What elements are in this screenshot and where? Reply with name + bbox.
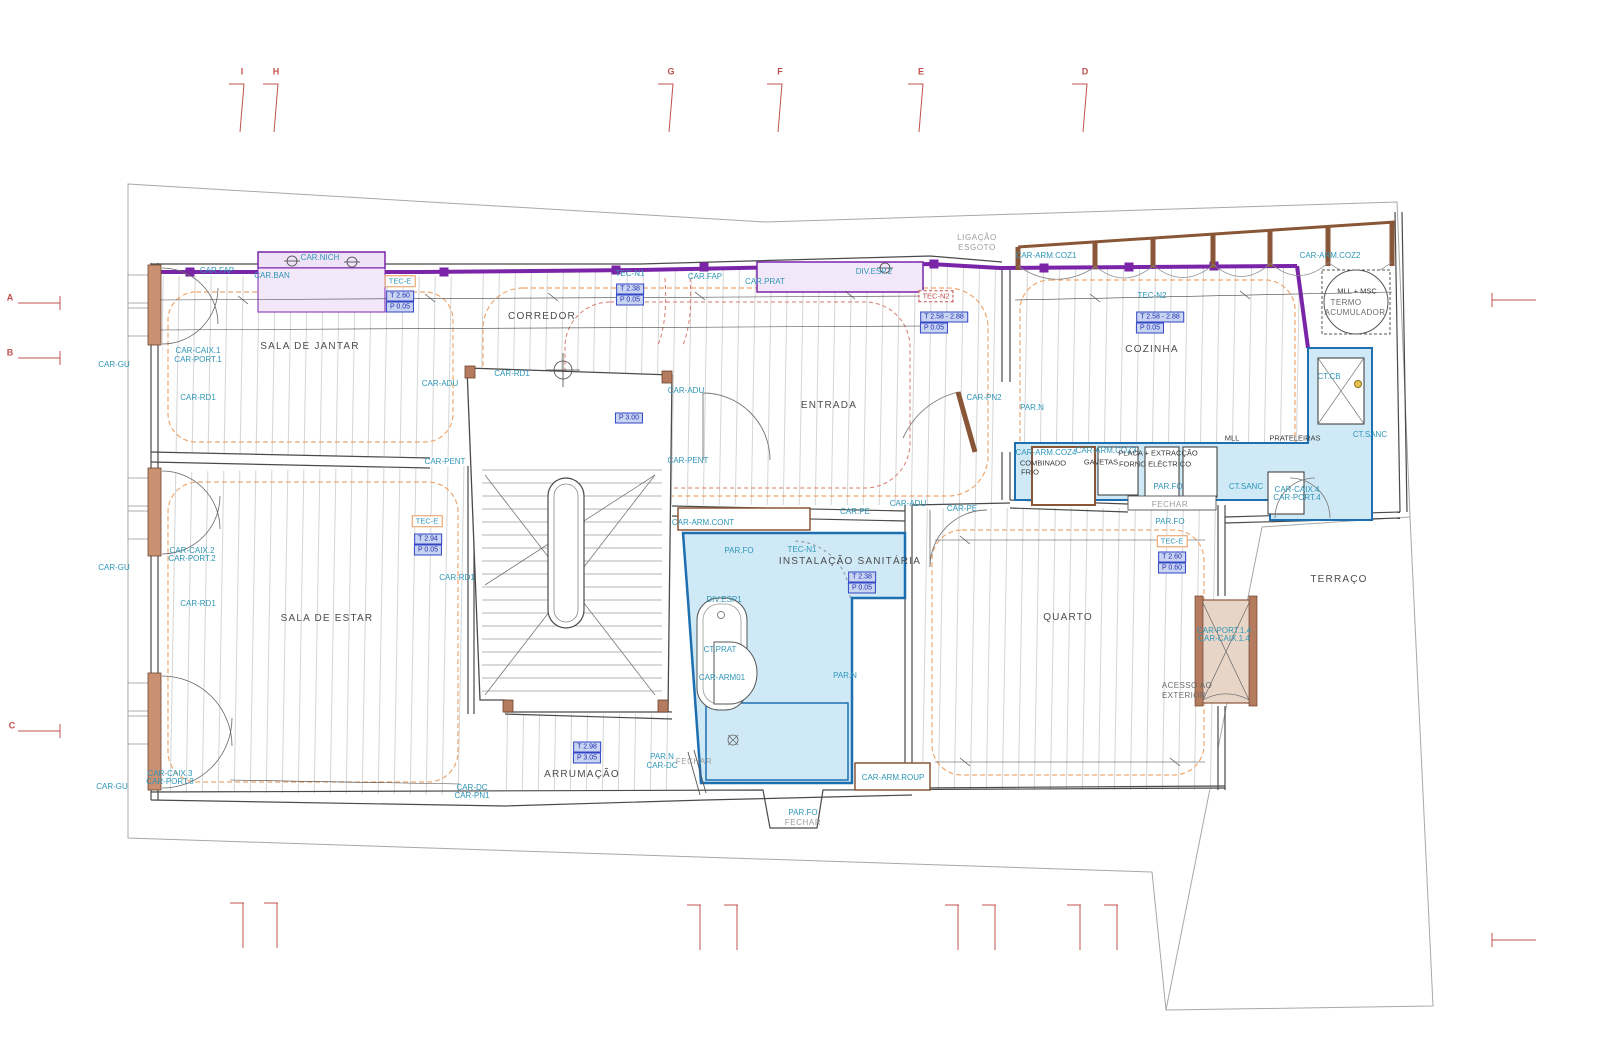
valve-dot (1355, 381, 1362, 388)
car-ban-cabinet (258, 268, 385, 312)
ct-sanc-fixture (1268, 472, 1304, 514)
car-prat-cabinet (757, 262, 923, 292)
forno-unit (1183, 447, 1217, 497)
car-arm-roup-wardrobe (855, 763, 930, 790)
exterior-access-door (1195, 596, 1257, 706)
fridge-combinado (1032, 447, 1095, 505)
placa-unit (1145, 447, 1179, 497)
gavetas-unit (1098, 447, 1138, 495)
fechar-door-panel (1128, 496, 1216, 510)
car-nich-cabinet (258, 252, 385, 268)
floor-plan-canvas: CAR.FAPCAR.BANCAR.NICHTEC-ET 2.60P 0.05C… (0, 0, 1600, 1063)
floor-plan-drawing (0, 0, 1600, 1063)
stair-well-oval (548, 478, 584, 628)
termo-acumulador (1322, 270, 1390, 334)
stairs (465, 353, 672, 712)
car-arm-cont-cabinet (678, 508, 810, 530)
